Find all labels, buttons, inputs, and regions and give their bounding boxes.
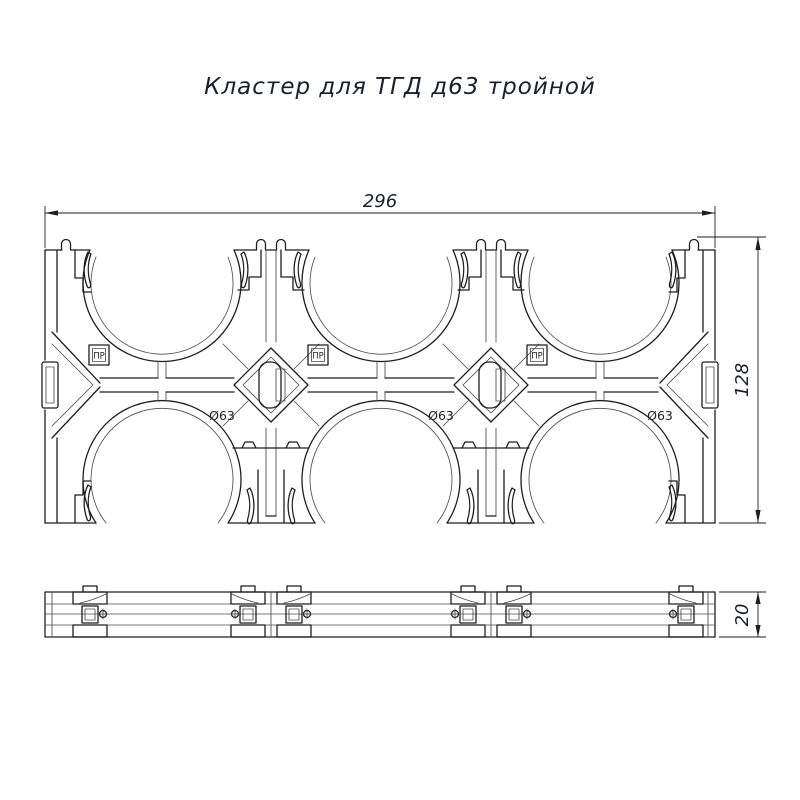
cluster-unit-1 xyxy=(83,250,241,523)
divider-column-2 xyxy=(443,240,539,524)
side-connector-d1-right xyxy=(277,586,312,637)
side-view xyxy=(45,586,715,637)
diameter-label-2: Ø63 xyxy=(428,408,454,423)
side-outline xyxy=(45,592,715,637)
marking-label-3: ПР xyxy=(531,352,543,362)
front-view: ПР ПР ПР Ø63 Ø63 Ø63 xyxy=(42,240,718,524)
side-connector-d2-right xyxy=(497,586,532,637)
technical-drawing: ПР ПР ПР Ø63 Ø63 Ø63 296 xyxy=(0,0,800,800)
side-connector-d2-left xyxy=(450,586,485,637)
right-edge-wall xyxy=(660,240,718,524)
dimension-height: 128 xyxy=(697,237,766,523)
diameter-label-3: Ø63 xyxy=(647,408,673,423)
side-connector-d1-left xyxy=(230,586,265,637)
dimension-height-value: 128 xyxy=(732,363,753,397)
divider-column-1 xyxy=(223,240,319,524)
marking-label-2: ПР xyxy=(312,352,324,362)
marking-label-1: ПР xyxy=(93,352,105,362)
side-connector-left-edge xyxy=(73,586,108,637)
dimension-thickness: 20 xyxy=(719,592,766,637)
drawing-sheet: Кластер для ТГД д63 тройной xyxy=(0,0,800,800)
dimension-width-value: 296 xyxy=(363,191,397,212)
diameter-label-1: Ø63 xyxy=(209,408,235,423)
dimension-thickness-value: 20 xyxy=(732,604,753,627)
cluster-unit-2 xyxy=(302,250,460,523)
side-connector-right-edge xyxy=(668,586,703,637)
side-inner-lines xyxy=(45,592,715,637)
cluster-unit-3 xyxy=(521,250,679,523)
dimension-width: 296 xyxy=(45,191,715,248)
